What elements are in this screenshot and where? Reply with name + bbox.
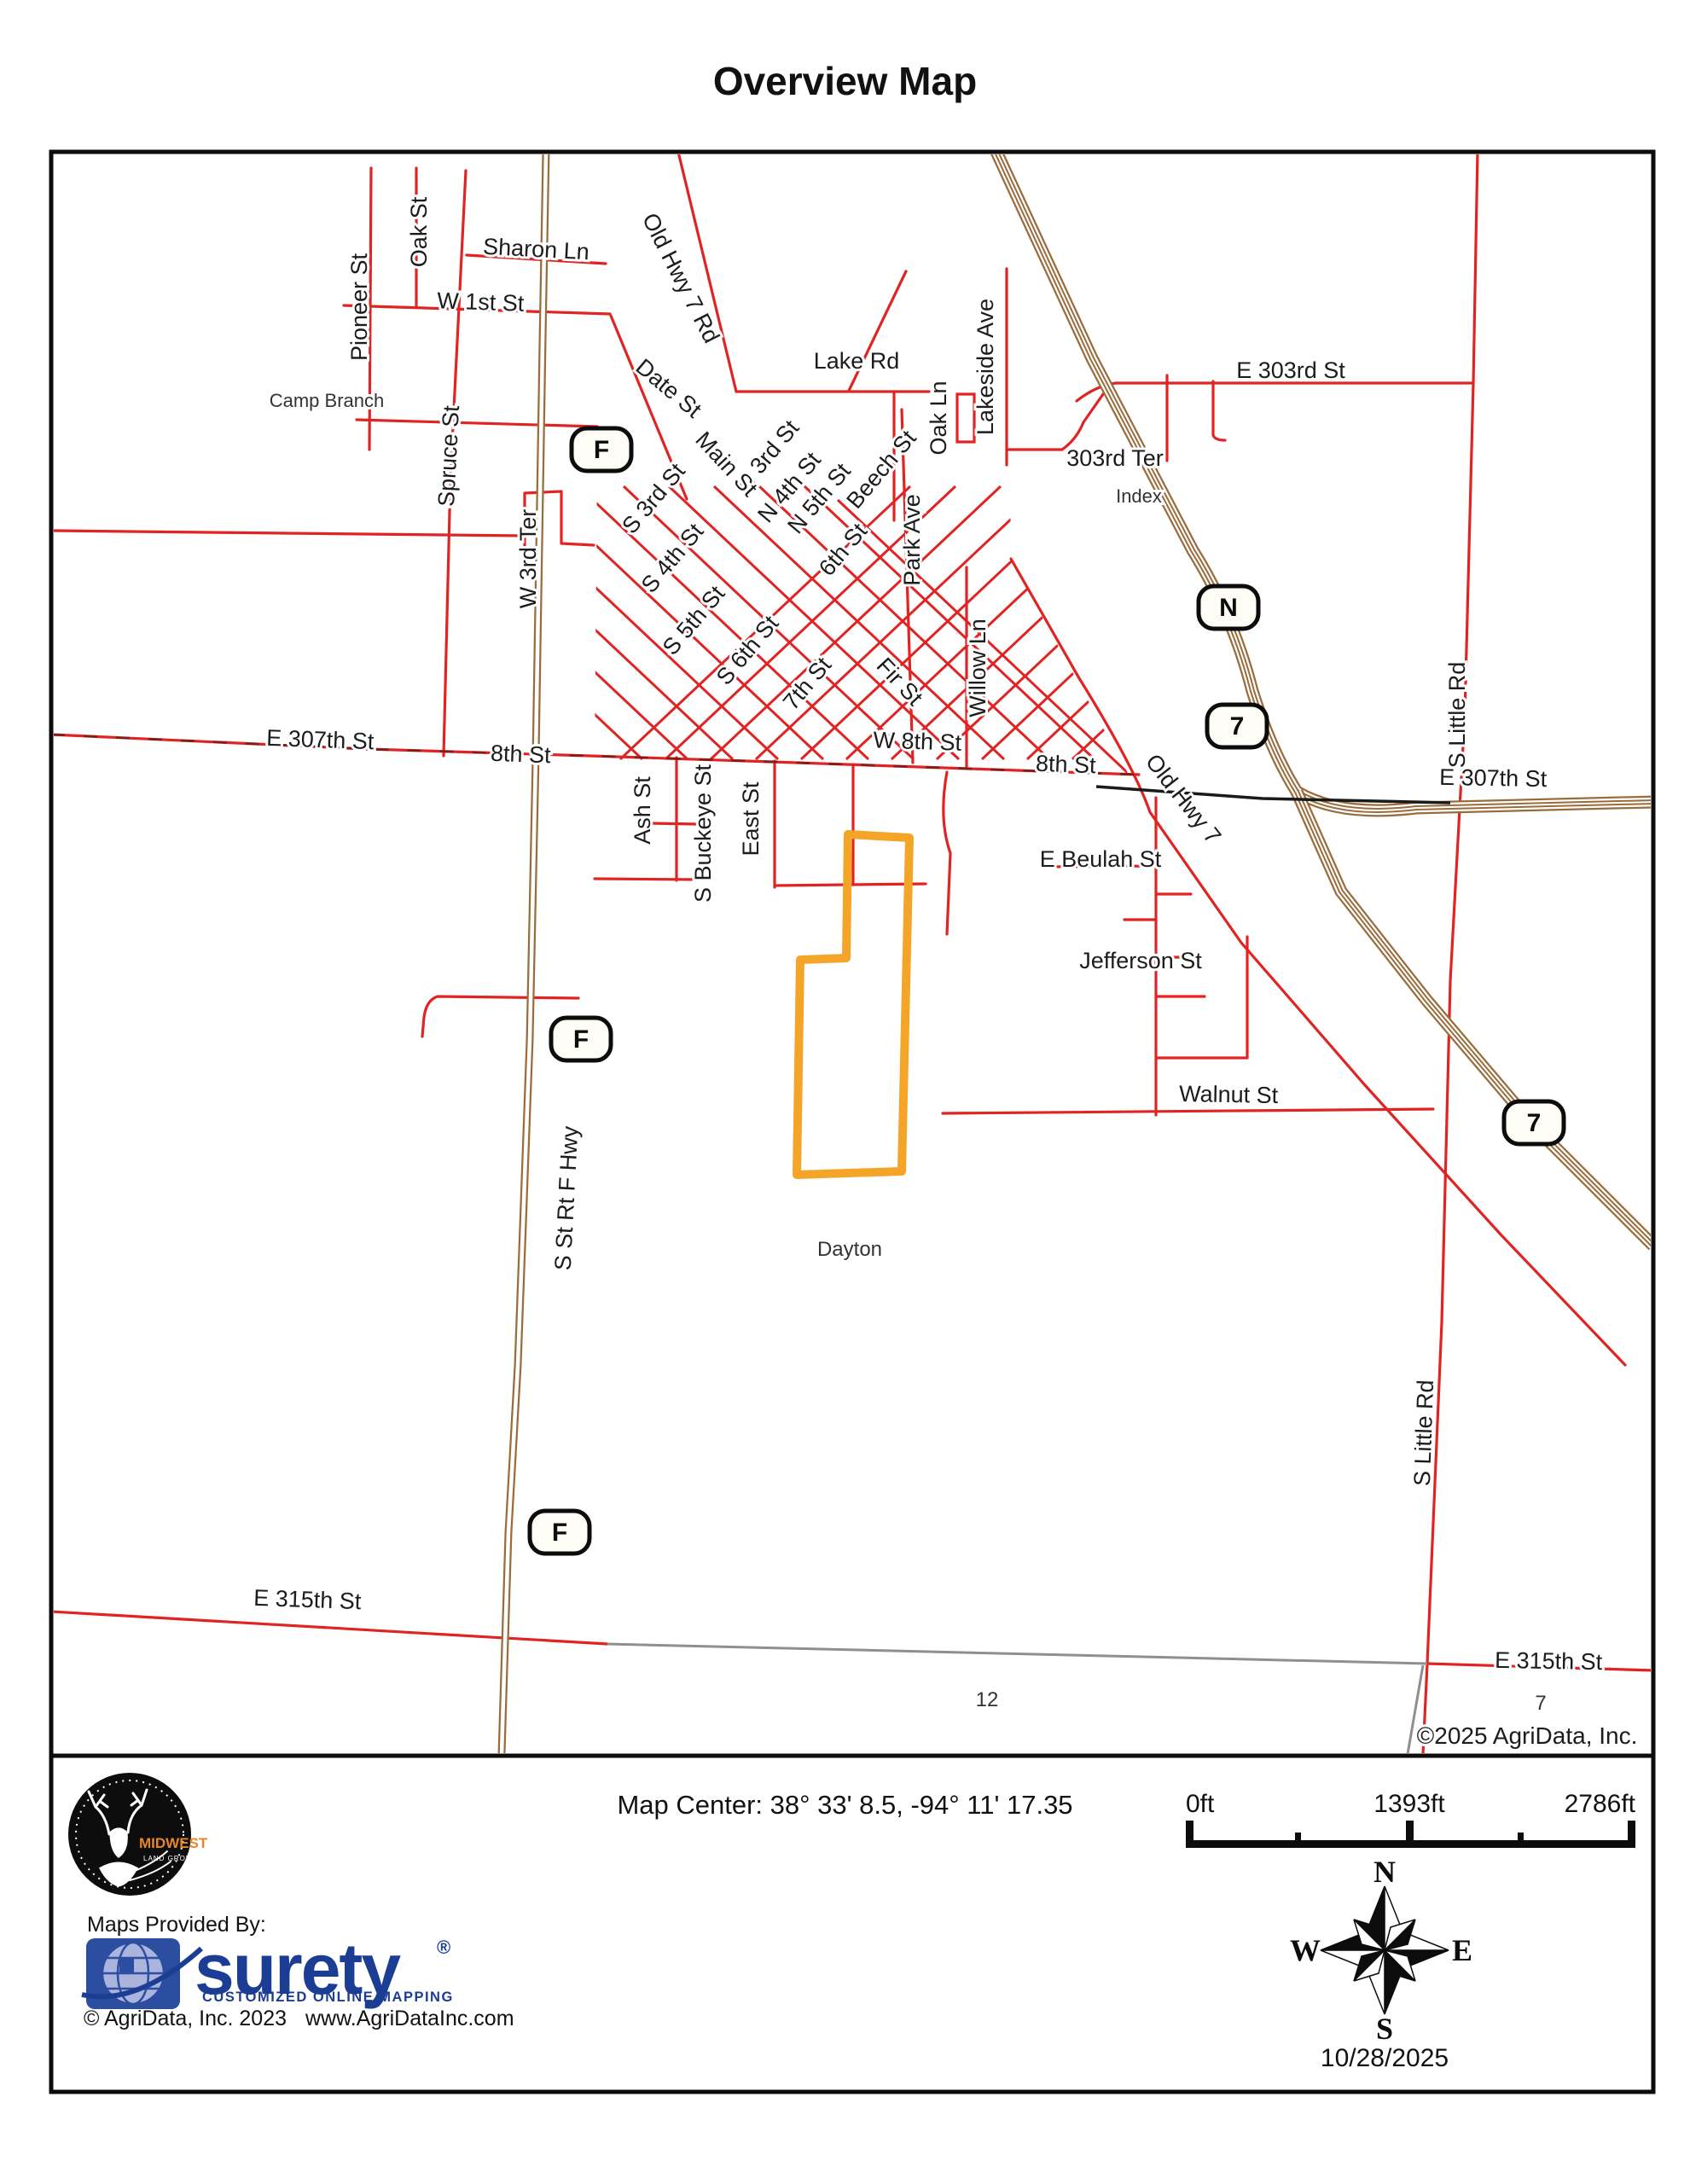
section-number: 12 (976, 1688, 999, 1711)
street-label-8th-st: 8th St (491, 741, 552, 768)
street-label-e-beulah-st: E Beulah St (1040, 846, 1162, 872)
street-label-303rd-ter: 303rd Ter (1066, 445, 1164, 471)
road-e-303rd-st (1077, 383, 1473, 401)
map-date: 10/28/2025 (1257, 2044, 1513, 2073)
road-west-horizontal (51, 531, 525, 536)
compass-s: S (1376, 2012, 1393, 2046)
compass-star (1321, 1886, 1449, 2014)
road-s-little-rd (1423, 152, 1478, 1754)
street-label-e-303rd-st: E 303rd St (1236, 357, 1345, 383)
street-label-ash-st: Ash St (630, 776, 655, 845)
route-marker-7: 7 (1504, 1101, 1564, 1144)
street-label-old-hwy-7: Old Hwy 7 (1141, 749, 1226, 849)
road-e-307th-8th (51, 735, 1139, 775)
street-label-park-ave: Park Ave (899, 494, 925, 586)
compass-n: N (1373, 1855, 1396, 1889)
road-e-315th-gray (607, 1644, 1427, 1664)
surety-tagline: CUSTOMIZED ONLINE MAPPING (202, 1989, 454, 2006)
map-center-readout: Map Center: 38° 33' 8.5, -94° 11' 17.35 (0, 1790, 1690, 1821)
road-walnut-st (943, 1109, 1433, 1113)
street-labels: Old Hwy 7 RdSharon LnOak StPioneer StW 1… (253, 196, 1638, 1749)
street-label-s-little-rd: S Little Rd (1409, 1380, 1438, 1487)
street-label-e-315th-st: E 315th St (1495, 1647, 1603, 1675)
street-label-s-buckeye-st: S Buckeye St (690, 764, 716, 903)
road-camp-branch (357, 420, 597, 427)
compass-rose: N E S W (1290, 1855, 1472, 2046)
street-label-jefferson-st: Jefferson St (1079, 948, 1202, 973)
street-label-s-4th-st: S 4th St (636, 518, 709, 597)
midwest-logo-text: MIDWEST (139, 1835, 208, 1851)
road-e-315th-west (51, 1612, 607, 1644)
svg-text:F: F (573, 1025, 589, 1054)
street-label-8th-st: 8th St (1036, 751, 1097, 778)
map-svg: Old Hwy 7 RdSharon LnOak StPioneer StW 1… (0, 0, 1690, 2184)
midwest-logo-subtext: LAND GROUP (143, 1855, 197, 1862)
scale-bar-graphic (1186, 1821, 1635, 1848)
street-label-e-315th-st: E 315th St (253, 1585, 363, 1614)
surety-globe-icon (82, 1938, 201, 2009)
svg-text:N: N (1219, 594, 1238, 622)
route-markers: FFFN77 (530, 428, 1564, 1554)
hwy-7-main (996, 152, 1653, 810)
street-label-pioneer-st: Pioneer St (346, 253, 372, 361)
street-label-e-307th-st: E 307th St (266, 725, 375, 754)
hwy-7-south-branch (1297, 792, 1653, 1246)
compass-w: W (1290, 1933, 1321, 1967)
route-marker-f: F (530, 1511, 589, 1554)
map-canvas: Old Hwy 7 RdSharon LnOak StPioneer StW 1… (51, 152, 1653, 1754)
street-label-w-1st-st: W 1st St (437, 288, 525, 317)
road-lakeside-connector (1007, 386, 1109, 450)
street-label-camp-branch: Camp Branch (270, 390, 385, 411)
overview-map-page: Overview Map (0, 0, 1690, 2184)
surety-registered-mark: ® (437, 1937, 450, 1959)
street-label-s-st-rt-f-hwy: S St Rt F Hwy (550, 1125, 584, 1271)
agridata-website: www.AgriDataInc.com (305, 2007, 514, 2031)
svg-text:F: F (594, 436, 609, 464)
street-label-old-hwy-7-rd: Old Hwy 7 Rd (637, 209, 724, 347)
section-number: 7 (1535, 1692, 1546, 1715)
gray-roads (607, 1644, 1427, 1754)
route-marker-f: F (551, 1018, 611, 1060)
svg-text:F: F (552, 1519, 567, 1547)
street-label-walnut-st: Walnut St (1179, 1081, 1279, 1108)
hwy-7 (996, 152, 1653, 1246)
route-marker-f: F (572, 428, 631, 471)
street-label-s-3rd-st: S 3rd St (617, 458, 690, 538)
route-marker-7: 7 (1207, 705, 1267, 747)
road-loop (957, 394, 974, 442)
route-marker-n: N (1199, 586, 1258, 629)
road-303rd-ter (1167, 375, 1225, 461)
road-beulah-west-stub (944, 772, 950, 934)
street-label-w-8th-st: W 8th St (873, 727, 962, 756)
street-label-oak-ln: Oak Ln (926, 380, 951, 455)
railroad-line (1096, 787, 1450, 803)
street-label-index: Index (1116, 485, 1162, 507)
street-label-s-little-rd: S Little Rd (1444, 662, 1470, 769)
street-label-sharon-ln: Sharon Ln (482, 234, 589, 264)
street-label-spruce-st: Spruce St (433, 404, 464, 507)
svg-text:7: 7 (1527, 1109, 1542, 1137)
street-label-lake-rd: Lake Rd (814, 348, 900, 374)
street-label-willow-ln: Willow Ln (965, 619, 990, 717)
compass-e: E (1452, 1933, 1472, 1967)
street-label-w-3rd-ter: W 3rd Ter (515, 509, 541, 609)
map-copyright: ©2025 AgriData, Inc. (1417, 1722, 1638, 1749)
street-label-oak-st: Oak St (406, 196, 432, 267)
town-label: Dayton (817, 1238, 882, 1261)
agridata-copyright: © AgriData, Inc. 2023 (84, 2007, 287, 2031)
street-label-lakeside-ave: Lakeside Ave (973, 299, 998, 435)
svg-text:7: 7 (1230, 712, 1245, 741)
street-label-east-st: East St (738, 781, 764, 857)
